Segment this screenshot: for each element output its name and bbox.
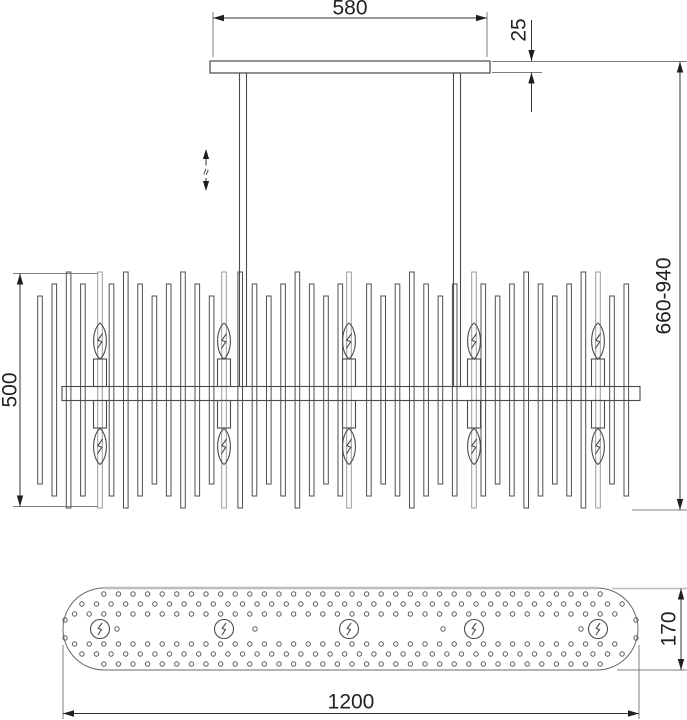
crystal-dot — [364, 612, 368, 616]
crystal-dot — [445, 652, 449, 656]
crystal-dot — [554, 612, 558, 616]
crystal-dot — [145, 642, 149, 646]
crystal-rod — [395, 284, 400, 496]
candle-tube-lower — [94, 401, 107, 429]
crystal-dot — [299, 652, 303, 656]
crystal-rod — [166, 284, 171, 496]
crystal-dot — [226, 602, 230, 606]
crystal-dot — [72, 642, 76, 646]
crystal-rod — [38, 296, 43, 484]
crystal-dot — [489, 652, 493, 656]
crystal-dot — [306, 612, 310, 616]
crystal-dot — [116, 612, 120, 616]
crystal-dot — [343, 602, 347, 606]
crystal-dot — [423, 642, 427, 646]
crystal-dot — [518, 602, 522, 606]
crystal-dot — [291, 642, 295, 646]
hanger-rod-left — [240, 73, 247, 387]
crystal-dot — [437, 662, 441, 666]
adjust-arrow-down-icon — [203, 181, 209, 191]
crystal-dot — [175, 642, 179, 646]
crystal-dot — [467, 592, 471, 596]
crystal-dot — [233, 592, 237, 596]
crystal-dot — [80, 602, 84, 606]
crystal-dot — [138, 602, 142, 606]
crystal-dot — [116, 662, 120, 666]
crystal-dot — [386, 652, 390, 656]
crystal-dot — [379, 662, 383, 666]
arrowhead-up-icon — [677, 62, 683, 73]
arrowhead-down-icon — [678, 659, 684, 670]
crystal-dot — [445, 602, 449, 606]
crystal-rod — [109, 284, 114, 496]
crystal-dot-pattern — [63, 592, 638, 666]
bulb-positions — [91, 620, 608, 639]
approx-symbol: ≈ — [198, 167, 213, 177]
crystal-dot — [569, 592, 573, 596]
crystal-dot — [115, 627, 119, 631]
crystal-rod — [524, 272, 529, 508]
crystal-dot — [481, 642, 485, 646]
crystal-dot — [248, 612, 252, 616]
filament-bolt-icon — [472, 623, 476, 635]
filament-bolt-icon — [98, 623, 102, 635]
crystal-dot — [583, 662, 587, 666]
crystal-dot — [131, 662, 135, 666]
candle-tube-upper — [94, 359, 107, 387]
crystal-dot — [197, 652, 201, 656]
dimension-body-width: 1200 — [63, 645, 639, 719]
crystal-dot — [510, 592, 514, 596]
crystal-dot — [605, 602, 609, 606]
crystal-dot — [503, 602, 507, 606]
crystal-rod — [624, 284, 629, 496]
arrowhead-down-icon — [528, 50, 534, 61]
crystal-dot — [503, 652, 507, 656]
crystal-rod — [438, 296, 443, 484]
crystal-rod — [481, 284, 486, 496]
crystal-dot — [496, 592, 500, 596]
crystal-dot — [525, 612, 529, 616]
dim-label-body-height: 500 — [0, 372, 22, 407]
crystal-dot — [218, 642, 222, 646]
crystal-rod — [252, 284, 257, 496]
crystal-dot — [284, 652, 288, 656]
crystal-rod — [367, 284, 372, 496]
crystal-dot — [613, 642, 617, 646]
crystal-dot — [357, 602, 361, 606]
arrowhead-left-icon — [63, 710, 74, 716]
crystal-dot — [416, 602, 420, 606]
crystal-rod — [495, 296, 500, 484]
crystal-dot — [583, 612, 587, 616]
crystal-dot — [321, 592, 325, 596]
arrowhead-left-icon — [213, 15, 224, 21]
crystal-dot — [518, 652, 522, 656]
crystal-dot — [620, 652, 624, 656]
crystal-dot — [540, 612, 544, 616]
crystal-dot — [467, 612, 471, 616]
arrowhead-up-icon — [17, 274, 23, 285]
crystal-dot — [328, 652, 332, 656]
crystal-dot — [598, 612, 602, 616]
crystal-dot — [102, 592, 106, 596]
crystal-dot — [284, 602, 288, 606]
crystal-dot — [262, 642, 266, 646]
crystal-dot — [306, 592, 310, 596]
candle-tube-upper — [468, 359, 481, 387]
crystal-dot — [211, 652, 215, 656]
crystal-dot — [233, 612, 237, 616]
crystal-dot — [591, 652, 595, 656]
crystal-dot — [197, 602, 201, 606]
crystal-dot — [579, 627, 583, 631]
crystal-dot — [408, 592, 412, 596]
crystal-dot — [576, 602, 580, 606]
crystal-dot — [321, 642, 325, 646]
crystal-dot — [87, 612, 91, 616]
crystal-dot — [153, 602, 157, 606]
front-view: ≈ — [38, 61, 640, 508]
crystal-dot — [145, 612, 149, 616]
bulb-backdrop-rod — [347, 272, 352, 508]
crystal-dot — [467, 662, 471, 666]
crystal-dot — [255, 652, 259, 656]
crystal-dot — [131, 612, 135, 616]
crystal-rod — [66, 272, 71, 508]
crystal-dot — [175, 592, 179, 596]
crystal-dot — [496, 662, 500, 666]
crystal-dot — [175, 612, 179, 616]
crystal-dot — [379, 612, 383, 616]
crystal-dot — [116, 592, 120, 596]
crystal-dot — [299, 602, 303, 606]
crystal-dot — [211, 602, 215, 606]
crystal-dot — [167, 602, 171, 606]
crystal-dot — [525, 662, 529, 666]
crystal-dot — [182, 602, 186, 606]
bulb-circle — [589, 620, 608, 639]
crystal-dot — [569, 612, 573, 616]
crystal-dot — [80, 652, 84, 656]
crystal-dot — [452, 642, 456, 646]
crystal-dot — [569, 662, 573, 666]
crystal-dot — [430, 602, 434, 606]
crystal-dot — [379, 642, 383, 646]
crystal-rod — [581, 272, 586, 508]
crystal-dot — [262, 592, 266, 596]
crystal-dot — [350, 612, 354, 616]
crystal-dot — [576, 652, 580, 656]
crystal-dot — [350, 662, 354, 666]
crystal-dot — [372, 652, 376, 656]
bulb-backdrop-rod — [98, 272, 103, 508]
candle-bulb-column — [592, 272, 605, 508]
crystal-dot — [452, 592, 456, 596]
crystal-dot — [437, 592, 441, 596]
base-outline — [63, 588, 638, 670]
crystal-rod — [281, 284, 286, 496]
crystal-rods — [38, 272, 629, 508]
crystal-dot — [131, 592, 135, 596]
crystal-dot — [408, 662, 412, 666]
crystal-dot — [364, 592, 368, 596]
dim-label-top-width: 580 — [332, 0, 367, 20]
dimension-canopy-thickness: 25 — [492, 18, 542, 112]
crystal-dot — [226, 652, 230, 656]
dim-label-canopy-thickness: 25 — [508, 18, 531, 41]
crystal-dot — [328, 602, 332, 606]
crystal-dot — [525, 592, 529, 596]
crystal-dot — [335, 592, 339, 596]
crystal-dot — [591, 602, 595, 606]
crystal-dot — [598, 592, 602, 596]
crystal-dot — [204, 642, 208, 646]
crystal-dot — [94, 652, 98, 656]
crystal-rod — [81, 284, 86, 496]
crystal-dot — [131, 642, 135, 646]
crystal-dot — [102, 642, 106, 646]
crystal-dot — [562, 652, 566, 656]
bulb-circle — [465, 620, 484, 639]
crystal-dot — [613, 612, 617, 616]
candle-tube-lower — [468, 401, 481, 429]
crystal-dot — [540, 642, 544, 646]
crystal-dot — [481, 612, 485, 616]
crystal-rod — [209, 296, 214, 484]
crystal-rod — [510, 284, 515, 496]
crystal-dot — [489, 602, 493, 606]
crystal-rod — [181, 272, 186, 508]
crystal-dot — [189, 662, 193, 666]
dim-label-body-width: 1200 — [328, 691, 375, 714]
crystal-dot — [270, 602, 274, 606]
crystal-dot — [423, 612, 427, 616]
candle-bulb-column — [94, 272, 107, 508]
crystal-dot — [248, 642, 252, 646]
crystal-dot — [160, 592, 164, 596]
crystal-dot — [160, 662, 164, 666]
crystal-dot — [277, 662, 281, 666]
crystal-rod — [324, 296, 329, 484]
bulb-circle — [340, 620, 359, 639]
crystal-dot — [291, 592, 295, 596]
crystal-dot — [204, 612, 208, 616]
filament-bolt-icon — [347, 623, 351, 635]
candle-tube-lower — [592, 401, 605, 429]
crystal-dot — [547, 602, 551, 606]
crystal-rod — [610, 296, 615, 484]
dim-label-body-depth: 170 — [658, 611, 681, 646]
crystal-dot — [598, 642, 602, 646]
crystal-dot — [452, 612, 456, 616]
crystal-dot — [218, 592, 222, 596]
crystal-dot — [554, 642, 558, 646]
crystal-rod — [538, 284, 543, 496]
crystal-dot — [94, 602, 98, 606]
crystal-dot — [386, 602, 390, 606]
candle-tube-lower — [343, 401, 356, 429]
height-adjust-indicator: ≈ — [198, 149, 213, 191]
crystal-dot — [532, 602, 536, 606]
ceiling-plate — [210, 61, 490, 73]
crystal-dot — [481, 592, 485, 596]
crystal-dot — [372, 602, 376, 606]
arrowhead-down-icon — [677, 499, 683, 510]
crystal-dot — [218, 662, 222, 666]
crystal-dot — [277, 642, 281, 646]
candle-tube-upper — [592, 359, 605, 387]
crystal-dot — [394, 662, 398, 666]
crystal-dot — [408, 612, 412, 616]
dimension-body-depth: 170 — [612, 589, 687, 671]
crystal-dot — [182, 652, 186, 656]
bulb-circle — [91, 620, 110, 639]
crystal-dot — [379, 592, 383, 596]
crystal-dot — [474, 652, 478, 656]
crystal-rod — [152, 296, 157, 484]
crystal-dot — [145, 592, 149, 596]
filament-bolt-icon — [596, 623, 600, 635]
crystal-dot — [153, 652, 157, 656]
crystal-dot — [253, 627, 257, 631]
crystal-dot — [255, 602, 259, 606]
crystal-dot — [343, 652, 347, 656]
crystal-dot — [116, 642, 120, 646]
crystal-dot — [313, 652, 317, 656]
crystal-dot — [364, 662, 368, 666]
crystal-dot — [430, 652, 434, 656]
candle-bulb-column — [343, 272, 356, 508]
crystal-dot — [605, 652, 609, 656]
crystal-dot — [357, 652, 361, 656]
crystal-dot — [583, 592, 587, 596]
crystal-dot — [481, 662, 485, 666]
crystal-dot — [248, 662, 252, 666]
crystal-rod — [338, 284, 343, 496]
crystal-dot — [306, 662, 310, 666]
bulb-circle — [215, 620, 234, 639]
crystal-dot — [204, 592, 208, 596]
crystal-dot — [394, 642, 398, 646]
crystal-dot — [291, 612, 295, 616]
crystal-dot — [510, 662, 514, 666]
bulb-backdrop-rod — [222, 272, 227, 508]
crystal-dot — [124, 652, 128, 656]
crystal-dot — [401, 602, 405, 606]
crystal-dot — [408, 642, 412, 646]
crystal-dot — [145, 662, 149, 666]
crystal-dot — [540, 662, 544, 666]
candle-tube-lower — [218, 401, 231, 429]
arrowhead-up-icon — [678, 589, 684, 600]
crystal-dot — [306, 642, 310, 646]
crystal-dot — [401, 652, 405, 656]
crystal-dot — [160, 612, 164, 616]
crystal-dot — [72, 612, 76, 616]
crystal-dot — [189, 612, 193, 616]
crystal-dot — [394, 612, 398, 616]
crystal-dot — [350, 642, 354, 646]
candle-tube-upper — [218, 359, 231, 387]
crystal-dot — [321, 662, 325, 666]
crystal-dot — [510, 642, 514, 646]
crystal-dot — [321, 612, 325, 616]
crystal-dot — [554, 662, 558, 666]
candle-tube-upper — [343, 359, 356, 387]
crystal-dot — [532, 652, 536, 656]
crystal-dot — [270, 652, 274, 656]
crystal-dot — [335, 642, 339, 646]
crystal-dot — [240, 652, 244, 656]
crystal-dot — [441, 627, 445, 631]
crystal-rod — [381, 296, 386, 484]
crystal-dot — [437, 642, 441, 646]
crystal-dot — [467, 642, 471, 646]
dimension-overall-height: 660-940 — [492, 62, 687, 511]
arrowhead-right-icon — [628, 710, 639, 716]
crystal-dot — [277, 612, 281, 616]
crystal-rod — [410, 272, 415, 508]
filament-bolt-icon — [222, 623, 226, 635]
crystal-dot — [554, 592, 558, 596]
crystal-dot — [262, 612, 266, 616]
dimension-body-height: 500 — [0, 274, 98, 507]
dimension-top-width: 580 — [213, 0, 487, 57]
crystal-dot — [189, 642, 193, 646]
arrowhead-down-icon — [17, 496, 23, 507]
crystal-dot — [160, 642, 164, 646]
crystal-dot — [102, 612, 106, 616]
adjust-arrow-up-icon — [203, 149, 209, 159]
crystal-rod — [124, 272, 129, 508]
crystal-dot — [167, 652, 171, 656]
crystal-dot — [423, 592, 427, 596]
crystal-dot — [620, 602, 624, 606]
crystal-dot — [233, 642, 237, 646]
crystal-dot — [277, 592, 281, 596]
crystal-dot — [423, 662, 427, 666]
crystal-dot — [124, 602, 128, 606]
crystal-dot — [496, 642, 500, 646]
crystal-dot — [291, 662, 295, 666]
crystal-dot — [109, 652, 113, 656]
crystal-dot — [583, 642, 587, 646]
crystal-dot — [240, 602, 244, 606]
crystal-dot — [262, 662, 266, 666]
crystal-dot — [394, 592, 398, 596]
crystal-dot — [248, 592, 252, 596]
crystal-dot — [459, 652, 463, 656]
crystal-rod — [295, 272, 300, 508]
technical-drawing: ≈ 580 25 660-940 5 — [0, 0, 687, 720]
candle-bulb-column — [218, 272, 231, 508]
crystal-dot — [569, 642, 573, 646]
crystal-rod — [267, 296, 272, 484]
crystal-dot — [437, 612, 441, 616]
arrowhead-up-icon — [528, 73, 534, 84]
crystal-dot — [496, 612, 500, 616]
crystal-dot — [218, 612, 222, 616]
crystal-dot — [313, 602, 317, 606]
crystal-dot — [598, 662, 602, 666]
crystal-dot — [474, 602, 478, 606]
crystal-dot — [562, 602, 566, 606]
arrowhead-right-icon — [476, 15, 487, 21]
drawing-page: ≈ 580 25 660-940 5 — [0, 0, 687, 720]
crystal-dot — [335, 612, 339, 616]
crystal-dot — [547, 652, 551, 656]
